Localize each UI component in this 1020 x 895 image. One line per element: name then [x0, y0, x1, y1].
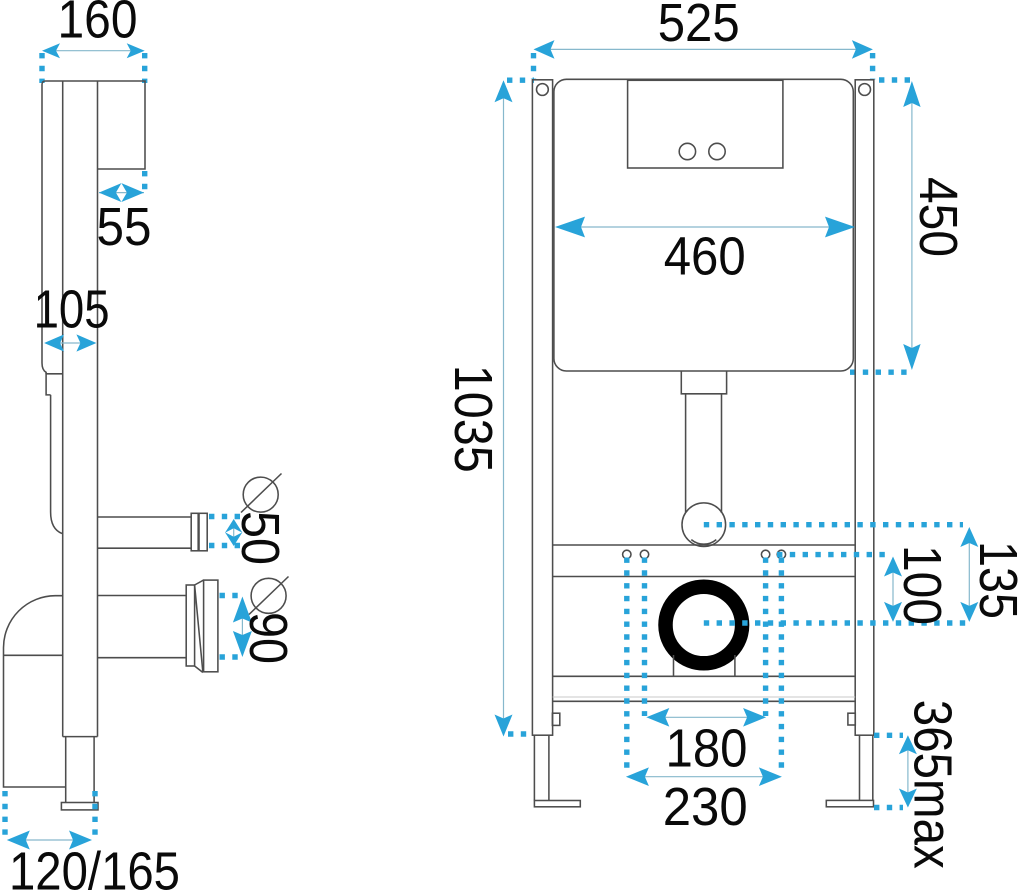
svg-text:180: 180 — [666, 719, 748, 779]
svg-text:100: 100 — [892, 545, 952, 625]
svg-text:1035: 1035 — [443, 365, 503, 473]
svg-text:450: 450 — [908, 177, 968, 257]
svg-text:460: 460 — [664, 227, 746, 287]
svg-text:90: 90 — [238, 612, 298, 664]
svg-text:105: 105 — [34, 280, 110, 340]
svg-text:365max: 365max — [902, 700, 962, 869]
svg-text:525: 525 — [658, 0, 740, 53]
svg-text:55: 55 — [97, 197, 152, 257]
svg-text:135: 135 — [968, 541, 1020, 619]
svg-text:50: 50 — [230, 511, 290, 565]
svg-text:120/165: 120/165 — [9, 842, 180, 895]
svg-text:230: 230 — [663, 777, 748, 837]
svg-text:160: 160 — [58, 0, 138, 50]
